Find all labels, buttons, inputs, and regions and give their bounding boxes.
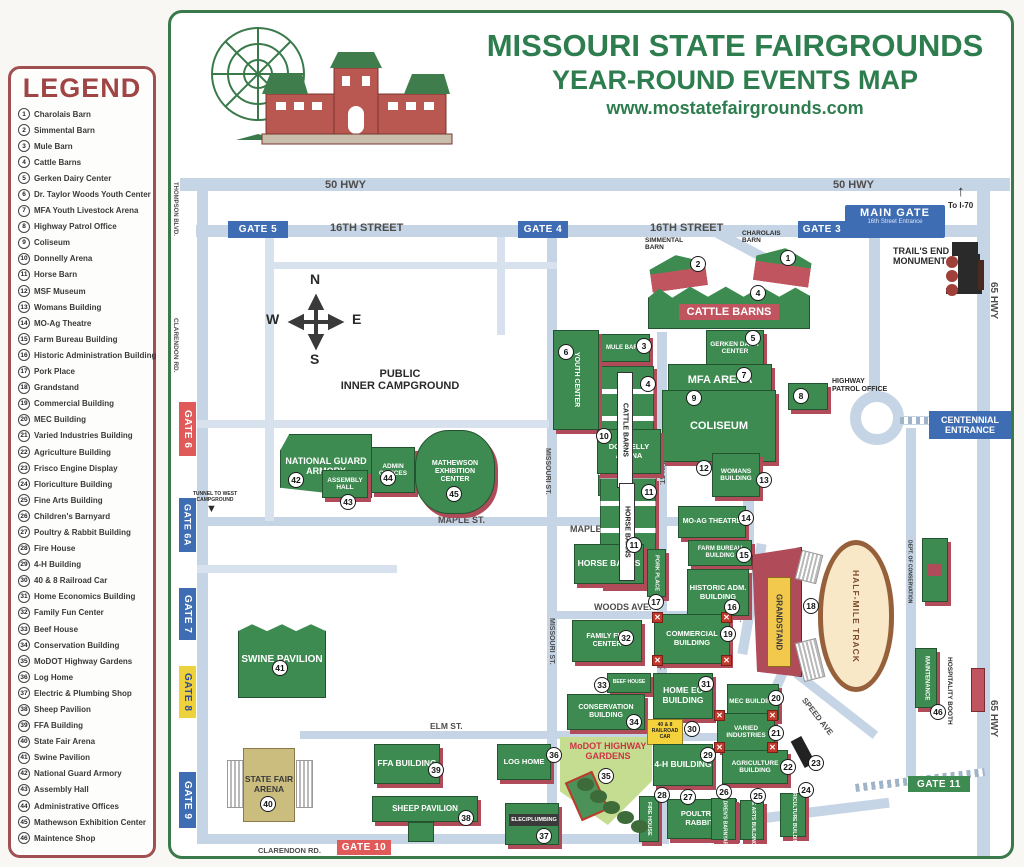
legend-item-label: Sheep Pavilion [34,705,91,714]
campground-label: PUBLIC INNER CAMPGROUND [300,368,500,392]
num-36: 36 [546,747,562,763]
compass-w: W [266,312,279,327]
legend-item: 31 Home Economics Building [18,589,153,605]
legend-item: 38 Sheep Pavilion [18,701,153,717]
legend-item-label: Historic Administration Building [34,351,156,360]
varied-corner-ne: ✕ [767,710,778,721]
legend-item: 10 Donnelly Arena [18,251,153,267]
num-19: 19 [720,626,736,642]
legend-item-label: Fine Arts Building [34,496,103,505]
street-woods: WOODS AVE. [594,602,652,612]
legend-item: 19 Commercial Building [18,396,153,412]
num-33: 33 [594,677,610,693]
num-28: 28 [654,787,670,803]
legend-item-label: Simmental Barn [34,126,95,135]
cattle-barns-column-label: CATTLE BARNS [617,372,633,488]
page-subtitle: YEAR-ROUND EVENTS MAP [470,64,1000,96]
num-10: 10 [596,428,612,444]
page-title: MISSOURI STATE FAIRGROUNDS [470,28,1000,64]
legend-item-number: 21 [18,430,30,442]
legend-item-label: Charolais Barn [34,110,91,119]
legend-item-label: Maintence Shop [34,834,95,843]
legend-item: 44 Administrative Offices [18,798,153,814]
num-8: 8 [793,388,809,404]
legend-item-label: MFA Youth Livestock Arena [34,206,138,215]
num-22: 22 [780,759,796,775]
num-29: 29 [700,747,716,763]
railroad-car: 40 & 8 RAILROAD CAR [647,719,683,745]
legend-item-label: 40 & 8 Railroad Car [34,576,107,585]
commercial-corner-nw: ✕ [652,612,663,623]
arena-wing-east [296,760,313,808]
legend-item: 2 Simmental Barn [18,122,153,138]
num-30: 30 [684,721,700,737]
legend-item: 23 Frisco Engine Display [18,460,153,476]
legend-item-number: 12 [18,285,30,297]
main-gate: MAIN GATE 16th Street Entrance [845,205,945,238]
legend-item: 39 FFA Building [18,718,153,734]
legend-item-label: Home Economics Building [34,592,135,601]
compass-s: S [310,352,319,367]
legend-item-label: Grandstand [34,383,79,392]
legend-item-number: 39 [18,720,30,732]
pork-place: PORK PLACE [647,549,666,597]
street-clarendon-h: CLARENDON RD. [258,846,321,855]
legend-item: 36 Log Home [18,669,153,685]
legend-item-label: MSF Museum [34,287,86,296]
num-5: 5 [745,330,761,346]
num-38: 38 [458,810,474,826]
legend-item-number: 11 [18,269,30,281]
arena-wing-west [227,760,244,808]
num-27: 27 [680,789,696,805]
fire-house: FIRE HOUSE [639,796,659,842]
legend-item: 22 Agriculture Building [18,444,153,460]
highway-patrol-label: HIGHWAY PATROL OFFICE [832,378,888,393]
website-url: www.mostatefairgrounds.com [470,98,1000,119]
legend-item-number: 15 [18,333,30,345]
gate-6a: GATE 6A [179,498,196,552]
charolais-barn-label: CHAROLAIS BARN [742,230,794,244]
num-32: 32 [618,630,634,646]
legend-item-number: 6 [18,189,30,201]
roundabout [850,391,904,445]
legend-item-label: MoDOT Highway Gardens [34,657,132,666]
legend-item: 18 Grandstand [18,380,153,396]
num-12: 12 [696,460,712,476]
legend-item-number: 43 [18,784,30,796]
legend-item: 14 MO-Ag Theatre [18,315,153,331]
legend-item: 24 Floriculture Building [18,476,153,492]
legend-item-number: 23 [18,462,30,474]
legend-item: 11 Horse Barn [18,267,153,283]
legend-item: 43 Assembly Hall [18,782,153,798]
map-header: MISSOURI STATE FAIRGROUNDS YEAR-ROUND EV… [470,28,1000,119]
legend-item-label: Children's Barnyard [34,512,110,521]
legend-item-number: 31 [18,591,30,603]
gate-10: GATE 10 [337,840,391,855]
agriculture-building: AGRICULTURE BUILDING [722,750,788,784]
street-clarendon-v: CLARENDON RD. [172,318,179,373]
legend-item-label: Coliseum [34,238,70,247]
legend-item-number: 5 [18,172,30,184]
legend-item-label: Womans Building [34,303,101,312]
grandstand-label-box: GRANDSTAND [767,577,791,667]
legend-item: 25 Fine Arts Building [18,492,153,508]
legend-item-label: Mathewson Exhibition Center [34,818,146,827]
legend-item-label: State Fair Arena [34,737,95,746]
legend-item-number: 3 [18,140,30,152]
legend-item: 6 Dr. Taylor Woods Youth Center [18,186,153,202]
hospitality-booth [971,668,985,712]
womans-building: WOMANS BUILDING [712,453,760,497]
half-mile-track: HALF-MILE TRACK [818,540,894,692]
legend-item-label: Highway Patrol Office [34,222,117,231]
horse-barns-column-label: HORSE BARNS [619,483,635,581]
legend-item-number: 34 [18,639,30,651]
legend-item-label: Pork Place [34,367,75,376]
legend-item: 41 Swine Pavilion [18,750,153,766]
cattle-barns-label: CATTLE BARNS [679,304,780,321]
legend-item: 34 Conservation Building [18,637,153,653]
road-50hwy [180,178,1010,191]
street-elm-west: ELM ST. [430,721,463,731]
street-maple-west: MAPLE ST. [438,515,485,525]
varied-corner-nw: ✕ [714,710,725,721]
legend-item-number: 41 [18,752,30,764]
compass-n: N [310,272,320,287]
num-1: 1 [780,250,796,266]
commercial-corner-se: ✕ [721,655,732,666]
num-16: 16 [724,599,740,615]
gate-5: GATE 5 [228,221,288,238]
legend-item-number: 28 [18,543,30,555]
legend-item-number: 20 [18,414,30,426]
legend-item-number: 24 [18,478,30,490]
legend-item-label: Mule Barn [34,142,73,151]
coliseum: COLISEUM [662,390,776,462]
legend-item-number: 35 [18,655,30,667]
train-icon [938,238,986,300]
legend-item-label: Family Fun Center [34,608,104,617]
legend-item: 26 Children's Barnyard [18,508,153,524]
mo-ag-theatre: MO-AG THEATRE [678,506,746,538]
fairgrounds-map-page: LEGEND 1 Charolais Barn 2 Simmental Barn… [0,0,1024,867]
num-11a: 11 [641,484,657,500]
legend-item-number: 26 [18,510,30,522]
num-41: 41 [272,660,288,676]
log-home: LOG HOME [497,744,551,780]
gate-6: GATE 6 [179,402,196,456]
legend-item-label: Poultry & Rabbit Building [34,528,131,537]
modot-label: MoDOT HIGHWAY GARDENS [566,742,650,762]
legend-item-label: Varied Industries Building [34,431,133,440]
legend-item: 8 Highway Patrol Office [18,219,153,235]
gate-4: GATE 4 [518,221,568,238]
legend-item-label: MEC Building [34,415,86,424]
legend-item-label: Horse Barn [34,270,77,279]
legend-item: 35 MoDOT Highway Gardens [18,653,153,669]
maintenance-building: MAINTENANCE [915,648,937,708]
legend-item: 27 Poultry & Rabbit Building [18,524,153,540]
road-campground-h [265,262,557,269]
legend-item-number: 36 [18,671,30,683]
legend-item: 28 Fire House [18,541,153,557]
street-65hwy-top: 65 HWY [988,282,999,319]
street-missouri-bottom: MISSOURI ST. [548,618,555,665]
legend-item-number: 33 [18,623,30,635]
legend-item-number: 32 [18,607,30,619]
legend-item-number: 13 [18,301,30,313]
legend-item-label: Gerken Dairy Center [34,174,111,183]
legend-item-label: Conservation Building [34,641,119,650]
legend-item: 16 Historic Administration Building [18,347,153,363]
num-20: 20 [768,690,784,706]
legend-item-number: 30 [18,575,30,587]
legend-item: 15 Farm Bureau Building [18,331,153,347]
legend-item-label: 4-H Building [34,560,81,569]
street-16th-west: 16TH STREET [330,222,403,234]
legend-item-label: National Guard Armory [34,769,122,778]
legend-item-label: Farm Bureau Building [34,335,118,344]
road-campground-v1 [265,237,274,521]
road-campground-v2 [497,237,505,335]
elec-plumbing-label-box: ELEC/PLUMBING [509,814,559,826]
legend-item: 45 Mathewson Exhibition Center [18,814,153,830]
gate-8: GATE 8 [179,666,196,718]
street-65hwy-bottom: 65 HWY [988,700,999,737]
num-37: 37 [536,828,552,844]
legend-item-number: 29 [18,559,30,571]
legend-item-label: Fire House [34,544,75,553]
legend-item-label: FFA Building [34,721,83,730]
legend-item-label: MO-Ag Theatre [34,319,91,328]
road-low-left-h [197,565,397,573]
compass-icon [282,288,350,356]
sheep-pavilion-stem [408,822,434,842]
centennial-entrance: CENTENNIAL ENTRANCE [929,411,1011,439]
legend-item-label: Cattle Barns [34,158,81,167]
compass-e: E [352,312,361,327]
gate-7: GATE 7 [179,588,196,640]
varied-corner-sw: ✕ [714,742,725,753]
legend-item: 37 Electric & Plumbing Shop [18,685,153,701]
grandstand-label: GRANDSTAND [775,594,784,650]
legend-item-number: 42 [18,768,30,780]
fine-arts-building: FINE ARTS BUILDING [740,800,764,840]
num-24: 24 [798,782,814,798]
legend-item-number: 19 [18,398,30,410]
legend-item: 17 Pork Place [18,364,153,380]
commercial-corner-sw: ✕ [652,655,663,666]
legend-item-number: 45 [18,816,30,828]
legend-item-number: 10 [18,253,30,265]
road-maingate [869,237,880,397]
road-mid-h [197,420,549,428]
hospitality-booth-label: HOSPITALITY BOOTH [946,652,953,730]
legend-item-number: 17 [18,366,30,378]
commercial-building: COMMERCIAL BUILDING [654,614,730,664]
num-4a: 4 [750,285,766,301]
legend-item: 20 MEC Building [18,412,153,428]
num-3: 3 [636,338,652,354]
legend-item-label: Frisco Engine Display [34,464,118,473]
tree-icon [577,778,594,791]
num-15: 15 [736,547,752,563]
legend-item-number: 4 [18,156,30,168]
num-14: 14 [738,510,754,526]
legend-item-label: Floriculture Building [34,480,112,489]
num-34: 34 [626,714,642,730]
legend-item-number: 25 [18,494,30,506]
street-50hwy-west: 50 HWY [325,179,366,191]
num-40: 40 [260,796,276,812]
legend-item: 12 MSF Museum [18,283,153,299]
legend-item-label: Dr. Taylor Woods Youth Center [34,190,151,199]
tree-icon [590,790,607,803]
beef-house: BEEF HOUSE [607,673,651,693]
legend-item-number: 14 [18,317,30,329]
num-21: 21 [768,725,784,741]
varied-corner-se: ✕ [767,742,778,753]
legend-panel: LEGEND 1 Charolais Barn 2 Simmental Barn… [8,66,156,858]
num-11b: 11 [626,537,642,553]
legend-item-number: 9 [18,237,30,249]
legend-item-number: 22 [18,446,30,458]
legend-item: 33 Beef House [18,621,153,637]
street-50hwy-east: 50 HWY [833,179,874,191]
legend-item: 4 Cattle Barns [18,154,153,170]
num-9: 9 [686,390,702,406]
legend-item: 30 40 & 8 Railroad Car [18,573,153,589]
legend-item-number: 44 [18,800,30,812]
legend-item: 1 Charolais Barn [18,106,153,122]
num-43: 43 [340,494,356,510]
legend-item-label: Electric & Plumbing Shop [34,689,132,698]
simmental-barn-label: SIMMENTAL BARN [645,237,697,251]
legend-item-number: 46 [18,832,30,844]
gate-9: GATE 9 [179,772,196,828]
legend-item-number: 16 [18,349,30,361]
admin-offices: ADMIN OFFICES [371,447,415,493]
legend-item: 32 Family Fun Center [18,605,153,621]
legend-items: 1 Charolais Barn 2 Simmental Barn 3 Mule… [11,104,153,846]
num-7: 7 [736,367,752,383]
legend-item-number: 40 [18,736,30,748]
num-42: 42 [288,472,304,488]
legend-item-label: Log Home [34,673,73,682]
floriculture-building: FLORICULTURE BUILDING [780,793,806,837]
num-25: 25 [750,788,766,804]
num-13: 13 [756,472,772,488]
legend-item-label: Agriculture Building [34,448,111,457]
street-16th-east: 16TH STREET [650,222,723,234]
fairgrounds-logo [196,22,486,148]
legend-item-number: 27 [18,526,30,538]
legend-item-label: Administrative Offices [34,802,119,811]
street-missouri-top: MISSOURI ST. [544,448,551,495]
num-18: 18 [803,598,819,614]
legend-item: 13 Womans Building [18,299,153,315]
legend-item: 40 State Fair Arena [18,734,153,750]
gate-3: GATE 3 [798,221,846,238]
legend-item-number: 8 [18,221,30,233]
elec-plumbing-label: ELEC/PLUMBING [511,817,557,823]
legend-item: 21 Varied Industries Building [18,428,153,444]
legend-item-label: Donnelly Arena [34,254,92,263]
legend-item: 5 Gerken Dairy Center [18,170,153,186]
tunnel-arrow: ▼ [206,503,217,515]
legend-item: 46 Maintence Shop [18,830,153,846]
legend-title: LEGEND [11,73,153,104]
num-2: 2 [690,256,706,272]
num-23: 23 [808,755,824,771]
to-i70-label: To I-70 [948,202,973,211]
num-4b: 4 [640,376,656,392]
legend-item-label: Beef House [34,625,78,634]
legend-item-number: 37 [18,687,30,699]
legend-item: 42 National Guard Armory [18,766,153,782]
legend-item-number: 7 [18,205,30,217]
num-46: 46 [930,704,946,720]
childrens-barnyard: CHILDREN'S BARNYARD [711,798,736,840]
legend-item-label: Commercial Building [34,399,114,408]
dept-of-conservation-label: DEPT. OF CONSERVATION [906,540,912,604]
legend-item-number: 1 [18,108,30,120]
legend-item: 9 Coliseum [18,235,153,251]
legend-item-number: 38 [18,704,30,716]
tree-icon [631,820,648,833]
num-35: 35 [598,768,614,784]
legend-item-label: Swine Pavilion [34,753,90,762]
dept-of-conservation [922,538,948,602]
num-31: 31 [698,676,714,692]
tree-icon [603,801,620,814]
num-44: 44 [380,470,396,486]
legend-item-number: 2 [18,124,30,136]
num-26: 26 [716,784,732,800]
legend-item: 7 MFA Youth Livestock Arena [18,203,153,219]
num-45: 45 [446,486,462,502]
road-east-service [906,428,916,780]
to-i70-arrow: ↑ [957,184,965,201]
legend-item-number: 18 [18,382,30,394]
gate-11: GATE 11 [908,776,970,792]
legend-item: 29 4-H Building [18,557,153,573]
legend-item-label: Assembly Hall [34,785,89,794]
num-39: 39 [428,762,444,778]
street-thompson: THOMPSON BLVD. [172,182,178,236]
num-6: 6 [558,344,574,360]
num-17: 17 [648,594,664,610]
legend-item: 3 Mule Barn [18,138,153,154]
